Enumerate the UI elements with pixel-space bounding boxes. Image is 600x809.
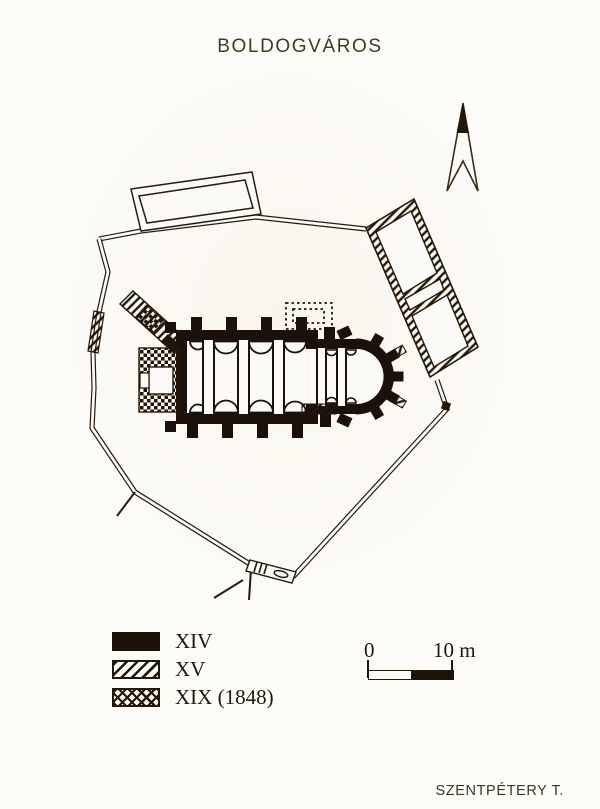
wall-stub [117,492,135,516]
gate-detail [246,560,296,583]
legend-swatch-xv [112,660,160,679]
scale-bar-rule [368,670,454,680]
wall-stub [249,569,251,600]
legend: XIV XV XIX (1848) [112,632,274,716]
legend-label: XIV [175,632,212,650]
chancel-hatched-section [302,404,336,414]
legend-row: XV [112,660,274,678]
outer-bastion [131,172,261,231]
legend-swatch-xiv [112,632,160,651]
legend-label: XV [175,660,205,678]
legend-swatch-xix [112,688,160,707]
west-wall-hatched-section [88,311,104,353]
north-arrow-icon [447,103,478,191]
scale-start-label: 0 [364,638,375,663]
legend-row: XIV [112,632,274,650]
scan-page: BOLDOGVÁROS [0,0,600,809]
scale-bar: 0 10 m [360,638,500,688]
legend-row: XIX (1848) [112,688,274,706]
west-tower-xix [139,348,179,412]
attribution: SZENTPÉTERY T. [436,783,564,799]
church-plan [120,291,406,438]
site-plan [0,0,600,809]
sacristy-dotted [286,303,332,329]
scale-bar-filled-half [411,671,453,679]
scale-end-label: 10 m [433,638,476,663]
legend-label: XIX (1848) [175,688,274,706]
wall-stub [214,580,243,598]
